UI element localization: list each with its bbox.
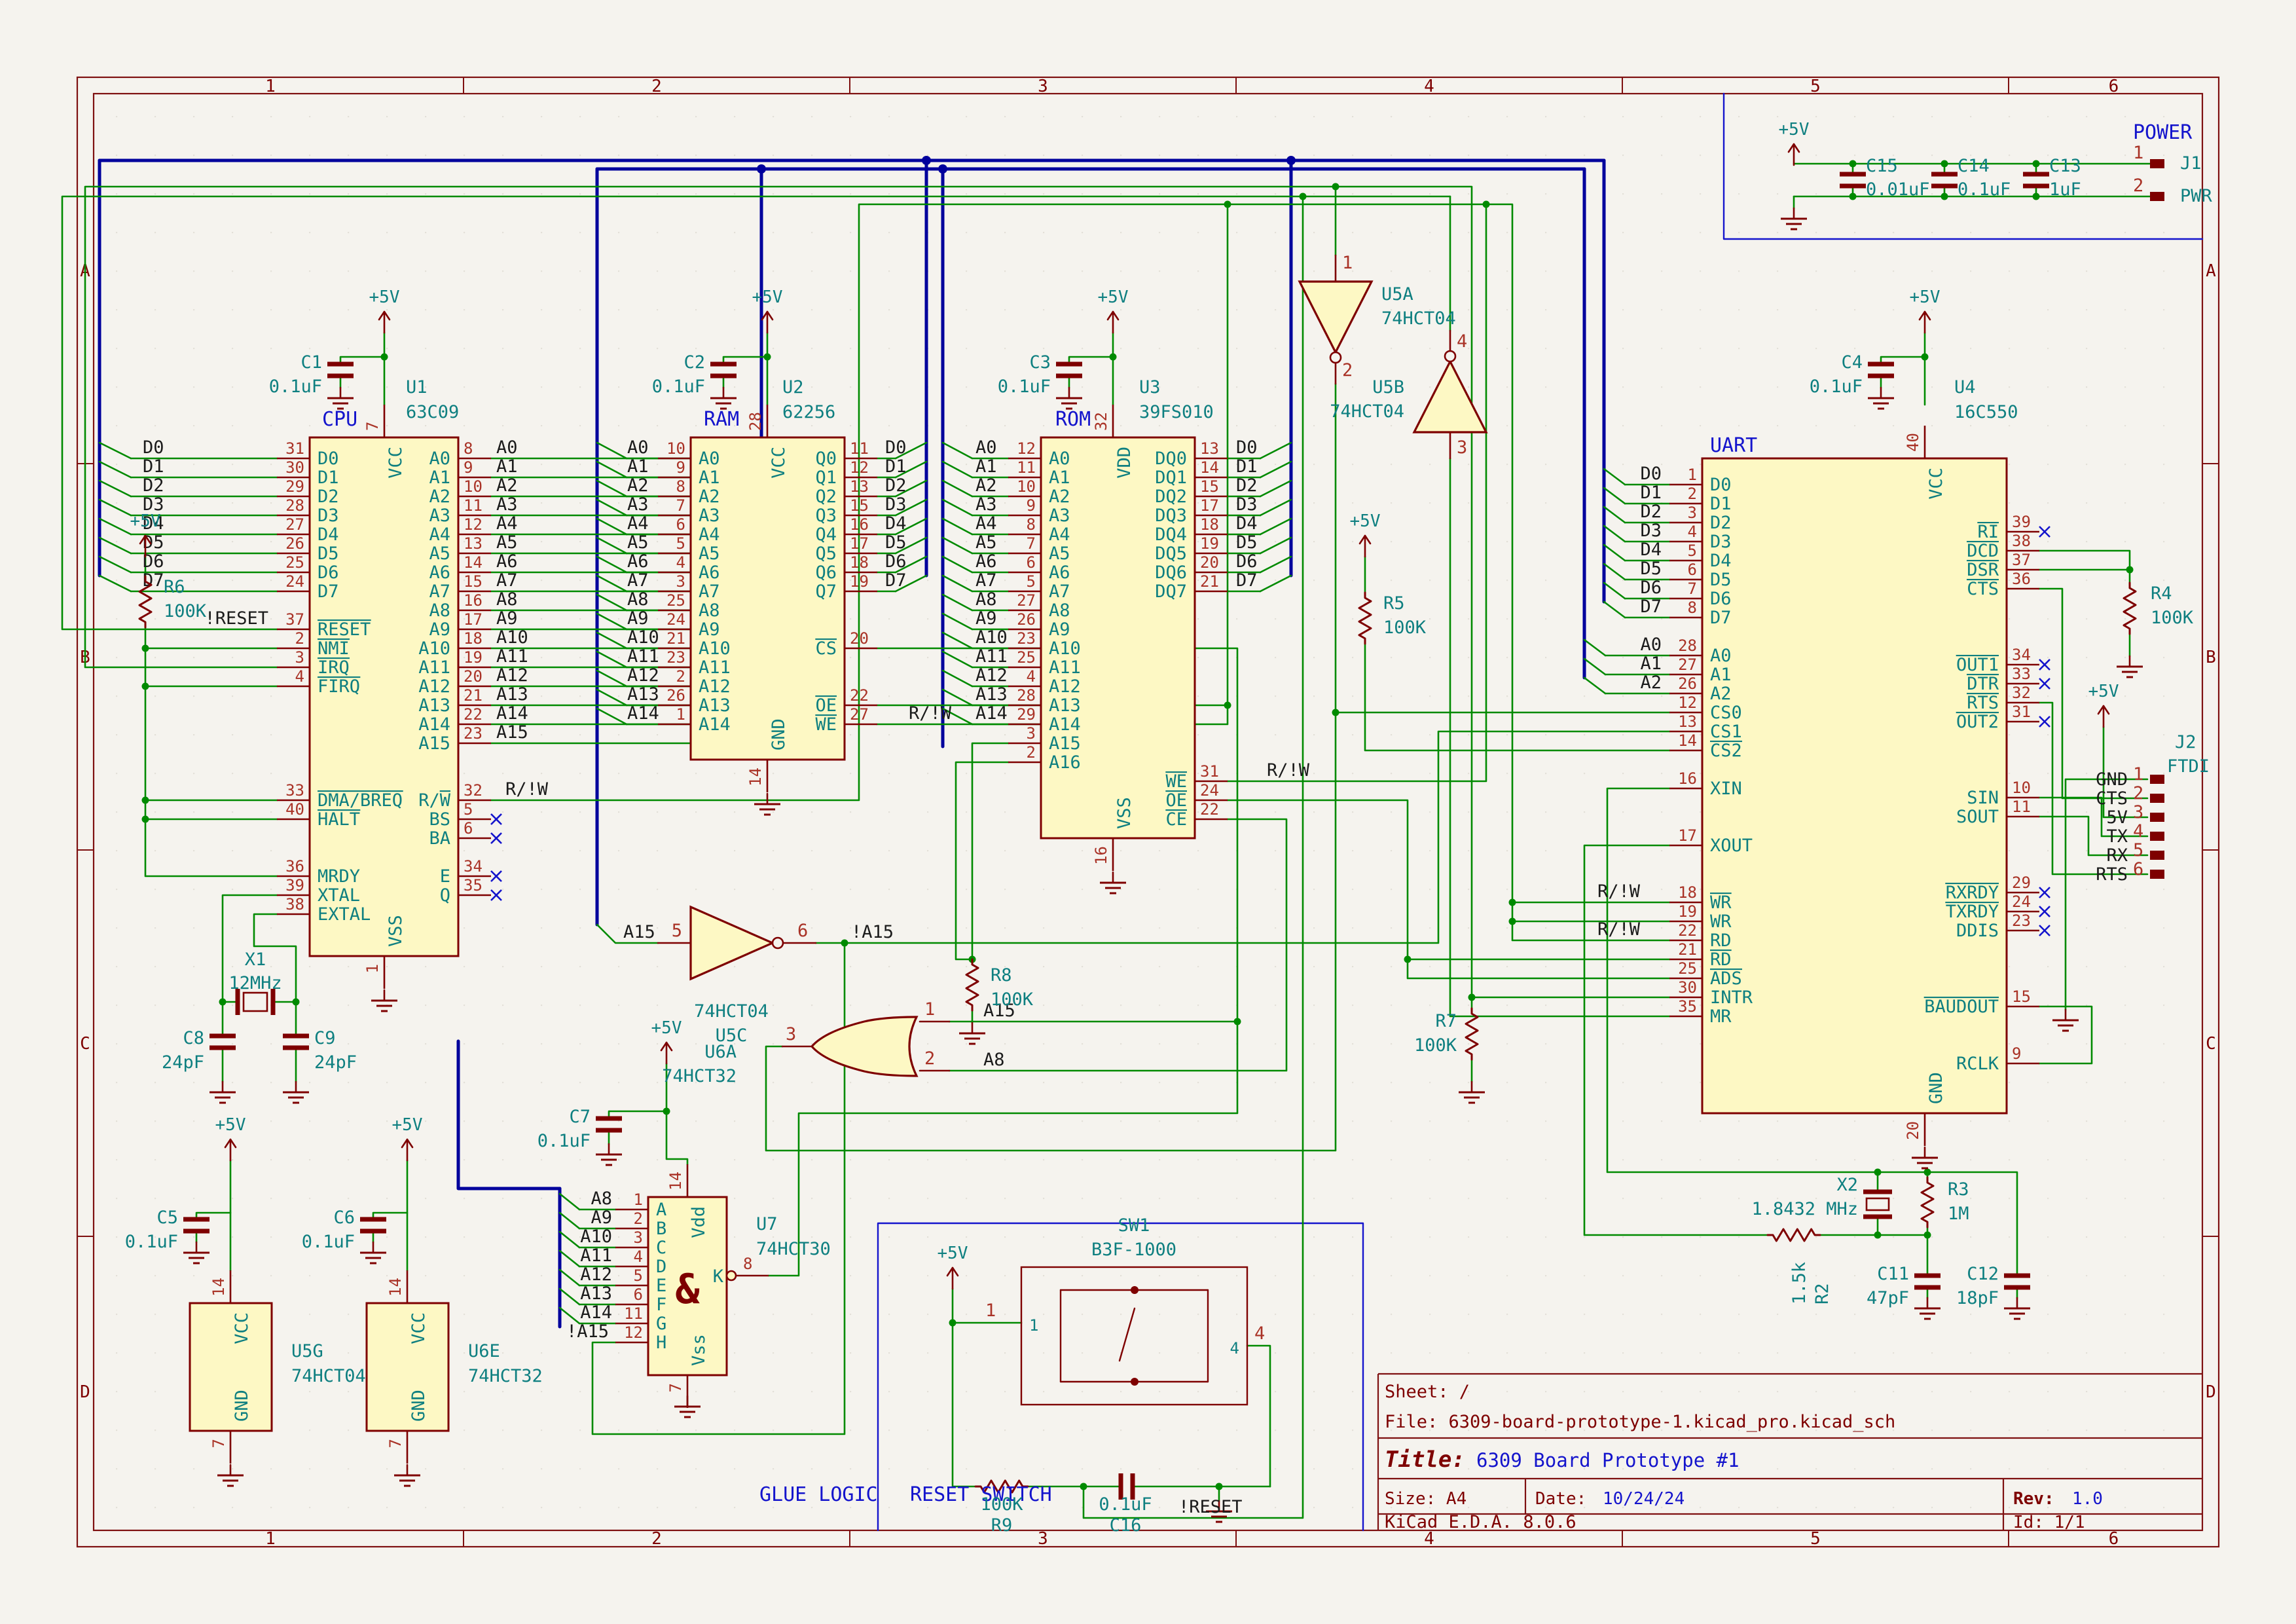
label-1[interactable]: 1 [985,1301,996,1321]
svg-text:BS: BS [429,809,450,830]
svg-text:18: 18 [1678,883,1697,902]
svg-text:U7: U7 [756,1214,778,1234]
svg-text:A0: A0 [1710,646,1732,666]
svg-text:D7: D7 [1710,608,1732,628]
label-2[interactable]: 2 [2133,175,2143,196]
label-15k[interactable]: 1.5k [1789,1262,1810,1304]
label-pwr[interactable]: PWR [2180,186,2213,206]
label-74hct04[interactable]: 74HCT04 [1381,308,1456,329]
label-c6[interactable]: C6 [333,1208,355,1228]
label-r3[interactable]: R3 [1948,1179,1969,1200]
svg-text:DQ3: DQ3 [1155,506,1187,526]
label-18pf[interactable]: 18pF [1956,1288,1999,1308]
svg-text:C16: C16 [1110,1515,1142,1536]
svg-text:R5: R5 [1383,593,1405,614]
svg-text:OE: OE [1165,790,1187,811]
label-c7[interactable]: C7 [569,1107,591,1127]
label-01uf[interactable]: 0.1uF [1958,179,2011,200]
svg-text:Q3: Q3 [815,506,837,526]
svg-text:27: 27 [285,515,304,534]
label-2[interactable]: 2 [2133,783,2143,803]
svg-text:4: 4 [2133,821,2143,841]
svg-text:5: 5 [1027,572,1036,591]
connector-pad[interactable] [2150,851,2164,860]
svg-text:A3: A3 [496,494,518,515]
label-12mhz[interactable]: 12MHz [228,973,282,993]
label-6[interactable]: 6 [2133,859,2143,879]
label-c11[interactable]: C11 [1877,1264,1909,1284]
svg-text:1.0: 1.0 [2072,1489,2103,1509]
svg-text:25: 25 [285,553,304,572]
svg-text:D3: D3 [318,506,339,526]
svg-text:A14: A14 [580,1302,612,1323]
label-ftdi[interactable]: FTDI [2167,756,2210,777]
label-1m[interactable]: 1M [1948,1204,1969,1224]
svg-text:3: 3 [1457,437,1467,458]
label-3[interactable]: 3 [1457,437,1467,458]
svg-text:13: 13 [1200,439,1219,458]
svg-text:15: 15 [464,572,483,591]
svg-text:A13: A13 [699,695,731,716]
label-rw[interactable]: R/!W [1597,881,1641,902]
svg-text:1: 1 [265,77,276,96]
svg-text:R2: R2 [1812,1283,1832,1304]
connector-pad[interactable] [2150,794,2164,803]
svg-text:5: 5 [1810,1529,1821,1549]
svg-text:A13: A13 [418,695,450,716]
label-2[interactable]: 2 [1342,360,1353,380]
connector-pad[interactable] [2150,813,2164,822]
label-a15[interactable]: !A15 [566,1321,609,1342]
svg-text:3: 3 [676,572,685,591]
svg-text:28: 28 [746,412,765,431]
label-74hct04[interactable]: 74HCT04 [1330,401,1404,422]
label-100k[interactable]: 100K [980,1494,1023,1515]
svg-text:WR: WR [1710,912,1732,932]
svg-text:25: 25 [1678,959,1697,978]
label-100k[interactable]: 100K [1383,618,1427,638]
svg-text:3: 3 [2133,802,2143,822]
svg-text:40: 40 [1904,433,1922,452]
svg-text:SIN: SIN [1967,788,1999,808]
svg-text:A8: A8 [496,589,518,610]
schematic-canvas: 112233445566AABBCCDDD0D1D2D3D4D5D6D7A0A1… [0,0,2296,1624]
label-24pf[interactable]: 24pF [162,1052,204,1073]
svg-text:ADS: ADS [1710,969,1742,989]
svg-text:ROM: ROM [1055,408,1091,431]
svg-text:WE: WE [815,714,837,735]
label-r2[interactable]: R2 [1812,1283,1832,1304]
label-rw[interactable]: R/!W [1267,760,1310,781]
svg-text:RD: RD [1710,950,1732,970]
svg-text:D0: D0 [1236,437,1258,458]
svg-text:20: 20 [464,667,483,686]
label-100k[interactable]: 100K [991,989,1034,1010]
svg-text:D1: D1 [1710,494,1732,514]
label-1[interactable]: 1 [2133,764,2143,784]
svg-text:A7: A7 [975,570,997,591]
svg-text:RAM: RAM [704,408,739,431]
svg-text:A4: A4 [429,525,450,545]
svg-text:R6: R6 [164,577,185,597]
svg-text:CS0: CS0 [1710,703,1742,723]
svg-text:74HCT04: 74HCT04 [1330,401,1404,422]
svg-text:C12: C12 [1967,1264,1999,1284]
label-rw[interactable]: R/!W [1597,919,1641,940]
label-2[interactable]: 2 [924,1048,935,1069]
label-rw[interactable]: R/!W [505,779,549,800]
svg-text:B: B [2206,648,2216,667]
svg-text:Q1: Q1 [815,468,837,488]
label-x2[interactable]: X2 [1836,1175,1858,1195]
svg-text:SW1: SW1 [1118,1215,1150,1236]
svg-text:6: 6 [2133,859,2143,879]
label-5[interactable]: 5 [672,921,682,941]
label-100k[interactable]: 100K [164,601,207,621]
svg-text:DTR: DTR [1967,674,1999,694]
label-c5[interactable]: C5 [156,1208,178,1228]
svg-text:D4: D4 [1236,513,1258,534]
svg-text:24: 24 [1200,781,1219,800]
label-sw1[interactable]: SW1 [1118,1215,1150,1236]
svg-text:27: 27 [1017,591,1036,610]
label-5[interactable]: 5 [2133,840,2143,860]
svg-text:CPU: CPU [322,408,357,431]
svg-text:Q6: Q6 [815,563,837,583]
svg-text:A0: A0 [496,437,518,458]
label-j2[interactable]: J2 [2175,732,2196,752]
label-b3f1000[interactable]: B3F-1000 [1091,1240,1176,1260]
label-c1[interactable]: C1 [301,352,322,373]
svg-text:OUT2: OUT2 [1956,712,1999,732]
svg-text:U4: U4 [1954,377,1976,397]
svg-text:17: 17 [1200,496,1219,515]
label-5v[interactable]: 5V [2106,807,2128,828]
svg-text:0.01uF: 0.01uF [1866,179,1930,200]
label-a8[interactable]: A8 [983,1050,1005,1070]
svg-text:2: 2 [295,629,304,648]
svg-text:4: 4 [1027,667,1036,686]
connector-pad[interactable] [2150,832,2164,841]
svg-text:+5V: +5V [215,1115,246,1135]
ic-U3[interactable]: U339FS01012A011A110A29A38A47A56A65A727A8… [1008,377,1228,871]
svg-text:A9: A9 [627,608,649,629]
svg-text:PWR: PWR [2180,186,2213,206]
svg-text:RXRDY: RXRDY [1946,883,1999,903]
label-x1[interactable]: X1 [245,950,266,970]
svg-text:SOUT: SOUT [1956,807,1999,827]
svg-text:D0: D0 [143,437,164,458]
label-1[interactable]: 1 [1029,1316,1038,1335]
label-18432mhz[interactable]: 1.8432 MHz [1751,1199,1858,1219]
svg-text:A: A [656,1200,666,1220]
svg-text:35: 35 [464,876,483,895]
label-1[interactable]: 1 [924,999,935,1020]
label-cts[interactable]: CTS [2096,788,2128,809]
svg-text:14: 14 [210,1278,228,1297]
svg-text:U6A: U6A [704,1042,737,1062]
svg-text:7: 7 [1688,580,1697,598]
label-01uf[interactable]: 0.1uF [1810,377,1863,397]
svg-text:22: 22 [1200,800,1219,819]
label-100k[interactable]: 100K [1414,1035,1457,1056]
svg-text:A10: A10 [496,627,528,648]
label-47pf[interactable]: 47pF [1867,1288,1909,1308]
label-01uf[interactable]: 0.1uF [998,377,1051,397]
svg-text:14: 14 [746,767,765,786]
svg-text:19: 19 [850,572,869,591]
label-01uf[interactable]: 0.1uF [125,1232,178,1252]
connector-pad[interactable] [2150,192,2164,201]
svg-text:D: D [656,1257,666,1277]
section-label: CPU [322,408,357,431]
label-3[interactable]: 3 [786,1024,796,1044]
label-4[interactable]: 4 [1457,331,1467,352]
section-label: ROM [1055,408,1091,431]
svg-text:CS2: CS2 [1710,741,1742,761]
svg-text:A10: A10 [627,627,659,648]
label-r8[interactable]: R8 [991,965,1012,986]
label-4[interactable]: 4 [2133,821,2143,841]
section-label: GLUE LOGIC [759,1483,878,1506]
label-01uf[interactable]: 0.1uF [302,1232,355,1252]
label-01uf[interactable]: 0.1uF [269,377,322,397]
svg-text:4: 4 [676,553,685,572]
svg-text:A12: A12 [580,1264,612,1285]
svg-text:OUT1: OUT1 [1956,655,1999,675]
svg-text:100K: 100K [2151,608,2194,628]
svg-text:10: 10 [666,439,685,458]
svg-text:15: 15 [850,496,869,515]
svg-text:10: 10 [1017,477,1036,496]
svg-text:2: 2 [676,667,685,686]
svg-text:39: 39 [2012,513,2031,531]
svg-text:1uF: 1uF [2049,179,2081,200]
label-u5a[interactable]: U5A [1381,284,1413,304]
label-c14[interactable]: C14 [1958,156,1990,176]
label-100k[interactable]: 100K [2151,608,2194,628]
svg-text:3: 3 [295,648,304,667]
svg-text:12MHz: 12MHz [228,973,282,993]
svg-text:A14: A14 [627,703,659,724]
connector-pad[interactable] [2150,775,2164,784]
connector-pad[interactable] [2150,870,2164,879]
label-c2[interactable]: C2 [683,352,705,373]
svg-text:DQ4: DQ4 [1155,525,1187,545]
svg-text:D1: D1 [1640,483,1662,503]
svg-text:1: 1 [1029,1316,1038,1335]
label-001uf[interactable]: 0.01uF [1866,179,1930,200]
label-a15[interactable]: !A15 [851,922,894,942]
label-c9[interactable]: C9 [314,1028,336,1048]
label-c4[interactable]: C4 [1841,352,1863,373]
label-1uf[interactable]: 1uF [2049,179,2081,200]
svg-text:A16: A16 [1049,752,1081,773]
svg-text:1: 1 [634,1190,643,1209]
section-label: RAM [704,408,739,431]
label-r7[interactable]: R7 [1435,1011,1457,1031]
svg-text:36: 36 [285,857,304,876]
label-gnd[interactable]: GND [2096,769,2128,790]
svg-text:+5V: +5V [938,1244,968,1263]
svg-text:12: 12 [624,1323,643,1342]
label-r9[interactable]: R9 [991,1515,1013,1536]
label-a15[interactable]: A15 [623,922,655,942]
svg-text:D6: D6 [1236,551,1258,572]
label-c16[interactable]: C16 [1110,1515,1142,1536]
svg-text:4: 4 [1424,77,1434,96]
label-6[interactable]: 6 [797,921,808,941]
svg-text:13: 13 [464,534,483,553]
svg-text:+5V: +5V [369,287,400,307]
label-3[interactable]: 3 [2133,802,2143,822]
svg-text:A13: A13 [975,684,1008,705]
svg-text:0.1uF: 0.1uF [125,1232,178,1252]
svg-text:U5G: U5G [291,1341,323,1361]
svg-text:11: 11 [624,1304,643,1323]
svg-text:A0: A0 [627,437,649,458]
svg-text:A6: A6 [496,551,518,572]
svg-text:K: K [713,1266,724,1287]
svg-text:D3: D3 [885,494,907,515]
svg-text:D6: D6 [885,551,907,572]
label-1[interactable]: 1 [1342,253,1353,273]
svg-text:30: 30 [285,458,304,477]
svg-text:+5V: +5V [651,1018,682,1038]
ic-U1[interactable]: U163C0931D030D129D228D327D426D525D624D73… [277,377,491,989]
svg-text:U2: U2 [782,377,804,397]
svg-text:A: A [2206,261,2216,281]
connector-pad[interactable] [2150,159,2164,168]
svg-text:FTDI: FTDI [2167,756,2210,777]
svg-text:F: F [656,1295,666,1315]
svg-text:DCD: DCD [1967,541,1999,561]
svg-text:1.5k: 1.5k [1789,1262,1810,1304]
svg-text:18pF: 18pF [1956,1288,1999,1308]
label-c15[interactable]: C15 [1866,156,1898,176]
svg-text:8: 8 [743,1255,752,1273]
label-r4[interactable]: R4 [2151,583,2172,604]
svg-text:7: 7 [676,496,685,515]
svg-text:5: 5 [2133,840,2143,860]
label-74hct32[interactable]: 74HCT32 [662,1066,737,1086]
label-01uf[interactable]: 0.1uF [538,1131,591,1151]
label-u6a[interactable]: U6A [704,1042,737,1062]
label-c12[interactable]: C12 [1967,1264,1999,1284]
svg-text:A1: A1 [1049,468,1070,488]
svg-text:9: 9 [676,458,685,477]
svg-text:24pF: 24pF [162,1052,204,1073]
svg-text:27: 27 [850,705,869,724]
label-4[interactable]: 4 [1254,1323,1265,1344]
label-rx[interactable]: RX [2106,845,2128,866]
svg-text:KiCad E.D.A. 8.0.6: KiCad E.D.A. 8.0.6 [1385,1512,1576,1532]
label-rw[interactable]: R/!W [909,703,952,724]
svg-text:A9: A9 [429,619,450,640]
svg-text:A7: A7 [496,570,518,591]
label-c13[interactable]: C13 [2049,156,2081,176]
svg-text:20: 20 [1904,1121,1922,1140]
svg-text:12: 12 [464,515,483,534]
svg-text:A15: A15 [623,922,655,942]
svg-text:A7: A7 [429,581,450,602]
svg-text:G: G [656,1314,666,1334]
label-u5b[interactable]: U5B [1372,377,1404,397]
label-r6[interactable]: R6 [164,577,185,597]
label-24pf[interactable]: 24pF [314,1052,357,1073]
label-reset[interactable]: !RESET [204,608,268,629]
svg-text:A5: A5 [699,544,720,564]
label-reset[interactable]: !RESET [1178,1497,1243,1517]
label-74hct04[interactable]: 74HCT04 [694,1001,769,1022]
svg-text:CS: CS [815,638,837,659]
svg-text:HALT: HALT [318,809,360,830]
svg-text:D1: D1 [143,456,164,477]
svg-text:A14: A14 [1049,714,1081,735]
svg-text:1: 1 [985,1301,996,1321]
svg-text:A6: A6 [429,563,450,583]
svg-text:D4: D4 [1640,540,1662,560]
svg-text:28: 28 [1678,637,1697,655]
label-r5[interactable]: R5 [1383,593,1405,614]
label-c3[interactable]: C3 [1029,352,1051,373]
svg-text:A6: A6 [627,551,649,572]
label-j1[interactable]: J1 [2180,153,2202,174]
svg-text:11: 11 [2012,798,2031,816]
svg-text:D7: D7 [885,570,907,591]
ic-U4[interactable]: U416C5501D02D13D24D35D46D57D68D728A027A1… [1669,377,2039,1146]
svg-text:CE: CE [1165,809,1187,830]
svg-text:R7: R7 [1435,1011,1457,1031]
svg-text:D0: D0 [1710,475,1732,495]
svg-text:GND: GND [409,1390,429,1422]
svg-text:A14: A14 [699,714,731,735]
svg-text:J1: J1 [2180,153,2202,174]
svg-text:A8: A8 [591,1189,612,1209]
svg-text:28: 28 [1017,686,1036,705]
svg-text:6: 6 [1027,553,1036,572]
svg-text:A8: A8 [975,589,997,610]
svg-text:D1: D1 [1236,456,1258,477]
svg-text:40: 40 [285,800,304,819]
svg-text:1: 1 [1342,253,1353,273]
label-01uf[interactable]: 0.1uF [1099,1494,1152,1515]
svg-text:22: 22 [1678,921,1697,940]
svg-text:31: 31 [2012,703,2031,721]
svg-text:8: 8 [1688,599,1697,617]
svg-text:A0: A0 [1049,449,1070,469]
svg-text:3: 3 [1038,1529,1048,1549]
label-rts[interactable]: RTS [2096,864,2128,885]
svg-text:A10: A10 [699,638,731,659]
label-1[interactable]: 1 [2133,143,2143,163]
svg-text:Sheet: /: Sheet: / [1385,1382,1470,1402]
svg-text:34: 34 [464,857,483,876]
svg-text:R/W: R/W [418,790,451,811]
svg-text:0.1uF: 0.1uF [1810,377,1863,397]
label-4[interactable]: 4 [1230,1339,1239,1357]
svg-text:34: 34 [2012,646,2031,664]
svg-text:31: 31 [285,439,304,458]
label-01uf[interactable]: 0.1uF [652,377,705,397]
svg-text:20: 20 [1200,553,1219,572]
svg-text:A11: A11 [496,646,528,667]
label-tx[interactable]: TX [2106,826,2128,847]
ic-U2[interactable]: U26225610A09A18A27A36A45A54A63A725A824A9… [658,377,877,792]
svg-text:29: 29 [2012,874,2031,892]
svg-text:CTS: CTS [1967,579,1999,599]
label-c8[interactable]: C8 [183,1028,204,1048]
